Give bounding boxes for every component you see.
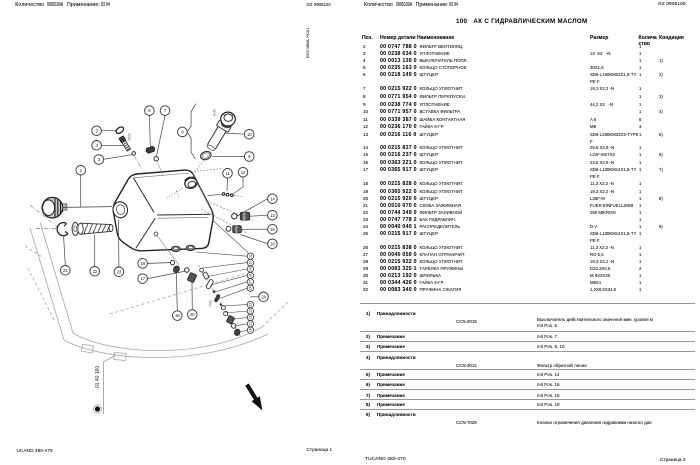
svg-text:11: 11: [225, 171, 230, 176]
svg-text:13: 13: [270, 213, 275, 218]
svg-text:29: 29: [249, 267, 253, 271]
svg-text:10: 10: [247, 132, 252, 137]
svg-text:25: 25: [249, 303, 253, 307]
svg-text:16: 16: [270, 241, 275, 246]
svg-text:24: 24: [261, 294, 266, 299]
svg-text:23: 23: [117, 269, 122, 274]
svg-text:01 40 160: 01 40 160: [95, 366, 101, 388]
svg-text:27: 27: [249, 280, 253, 284]
svg-text:31: 31: [249, 254, 253, 258]
svg-text:22: 22: [92, 269, 97, 274]
svg-text:18: 18: [140, 261, 145, 266]
svg-text:7029: 7029: [209, 300, 213, 307]
svg-text:2039: 2039: [128, 133, 132, 141]
svg-text:23: 23: [249, 309, 253, 313]
svg-text:26: 26: [249, 286, 253, 290]
svg-text:28: 28: [249, 273, 253, 277]
svg-text:14: 14: [270, 196, 275, 201]
svg-text:18: 18: [249, 328, 253, 332]
svg-text:4042: 4042: [212, 109, 216, 117]
svg-text:21: 21: [249, 322, 253, 326]
svg-text:19: 19: [175, 313, 180, 318]
svg-text:30: 30: [249, 261, 253, 265]
svg-text:20: 20: [190, 312, 195, 317]
svg-text:21: 21: [63, 268, 68, 273]
svg-text:22: 22: [249, 315, 253, 319]
svg-text:17: 17: [140, 276, 145, 281]
svg-text:12: 12: [241, 170, 246, 175]
svg-text:15: 15: [270, 227, 275, 232]
